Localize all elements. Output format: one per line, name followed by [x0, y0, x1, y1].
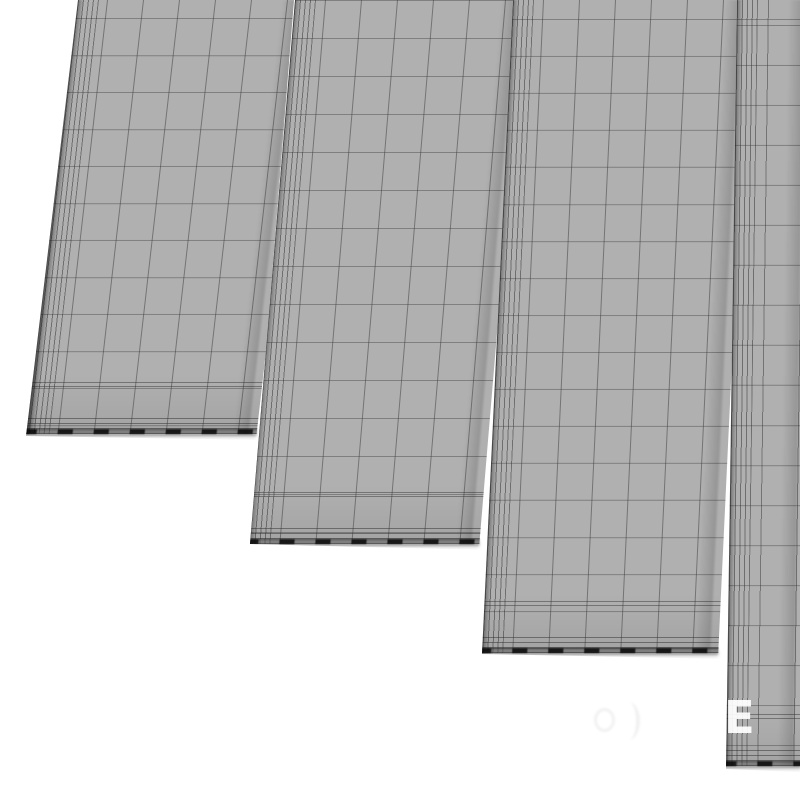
panel-1: [26, 0, 294, 440]
panel-left-seam: [26, 0, 84, 434]
panel-bottom-edge: [144, 539, 479, 544]
panel-bottom-edge: [685, 761, 800, 766]
render-canvas: E: [0, 0, 800, 800]
panel-bottom-edge: [0, 429, 257, 434]
panel-bottom-edge: [411, 648, 718, 653]
watermark-faint-arc-icon: [618, 702, 640, 740]
panel-surface: [0, 0, 306, 434]
panel-2: [250, 0, 513, 550]
watermark-faint-mark-icon: [594, 708, 615, 732]
panel-3: [482, 0, 737, 659]
panel-4: [726, 0, 800, 772]
